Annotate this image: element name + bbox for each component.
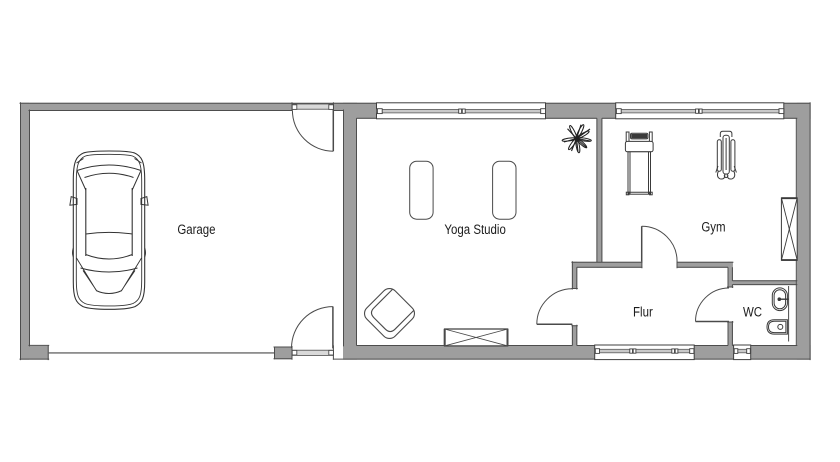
svg-text:Garage: Garage <box>177 222 215 237</box>
svg-text:Yoga Studio: Yoga Studio <box>444 222 505 237</box>
svg-text:Flur: Flur <box>633 304 653 319</box>
svg-text:Gym: Gym <box>701 220 725 235</box>
svg-text:WC: WC <box>743 304 762 319</box>
